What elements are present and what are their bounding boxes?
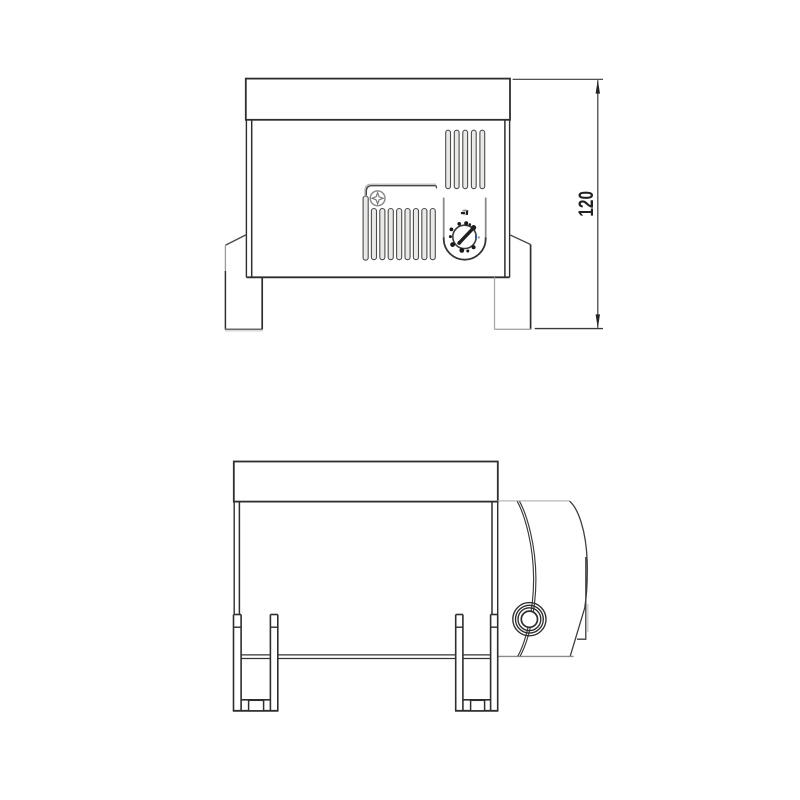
svg-text:120: 120 bbox=[575, 191, 598, 217]
